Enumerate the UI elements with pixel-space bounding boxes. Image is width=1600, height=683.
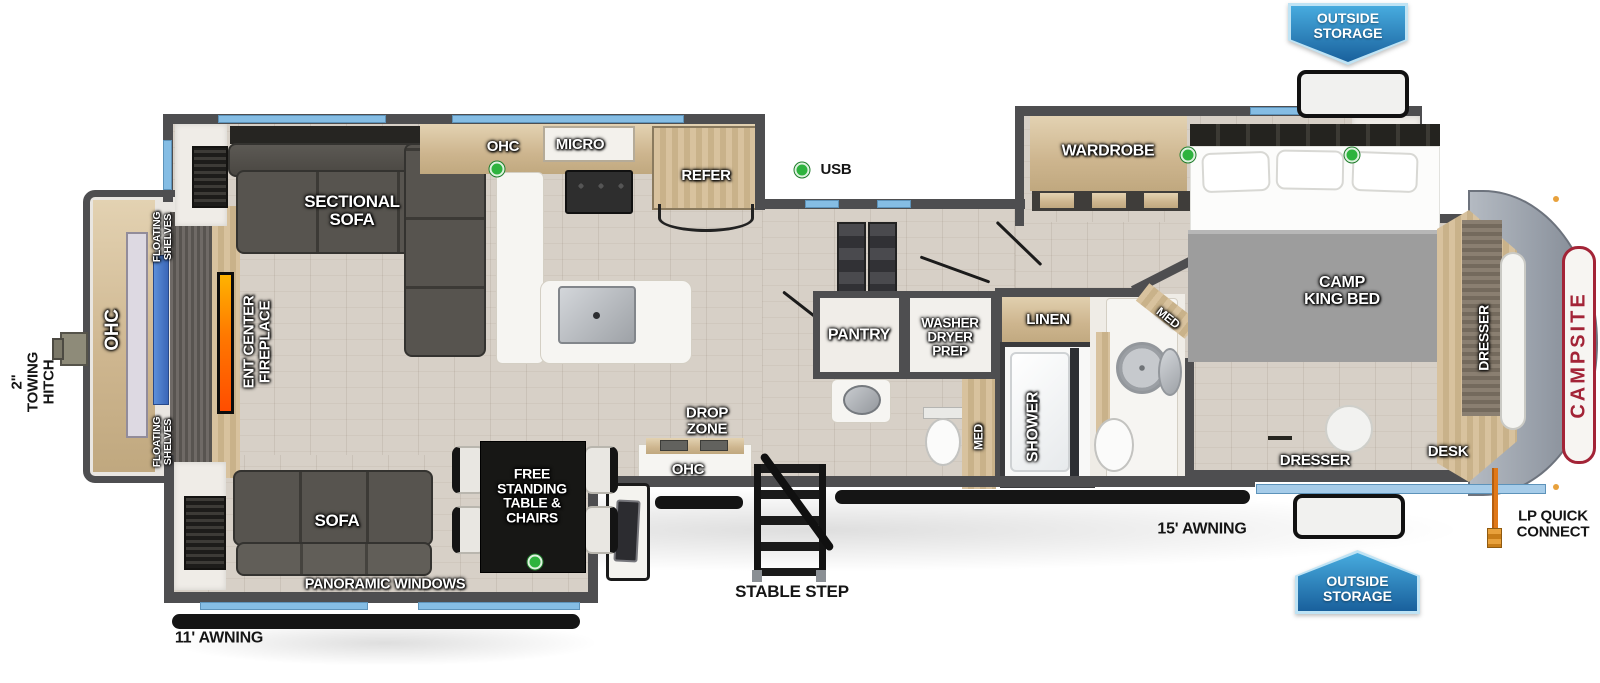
outside-storage-badge-top: OUTSIDE STORAGE bbox=[1288, 3, 1408, 65]
bath-sink-small bbox=[1158, 348, 1182, 396]
refrigerator-door-arc bbox=[658, 204, 754, 232]
storage-door-bottom bbox=[1293, 494, 1405, 539]
bath-bed-wall bbox=[1185, 358, 1194, 478]
linen-label: LINEN bbox=[1026, 312, 1070, 328]
bedroom-bottom-window bbox=[1256, 484, 1546, 494]
usb-dot-dinette-icon bbox=[528, 555, 543, 570]
floating-shelves-bottom-label: FLOATING SHELVES bbox=[152, 410, 174, 474]
drop-zone-tray-2 bbox=[700, 440, 728, 451]
entry-rail bbox=[655, 496, 743, 509]
awning-11-bar bbox=[172, 614, 580, 629]
sectional-sofa-label: SECTIONAL SOFA bbox=[296, 193, 408, 229]
slide1-window-2 bbox=[452, 115, 684, 123]
shower-label: SHOWER bbox=[1026, 392, 1043, 462]
slide2-left-wall bbox=[1015, 106, 1024, 226]
wardrobe-slat-3 bbox=[1144, 193, 1178, 208]
micro-label: MICRO bbox=[556, 137, 605, 153]
stable-step-foot-2 bbox=[816, 570, 826, 582]
slide1-window-1 bbox=[218, 115, 386, 123]
dinette-chair-3 bbox=[584, 446, 618, 494]
slide3-left-wall bbox=[164, 455, 174, 603]
lp-quick-connect-label: LP QUICK CONNECT bbox=[1497, 508, 1600, 540]
rear-tv-strip bbox=[153, 255, 169, 405]
slide1-end-window bbox=[192, 146, 228, 208]
hall-steps-2 bbox=[868, 222, 897, 298]
sectional-sofa-chaise bbox=[404, 143, 486, 357]
outside-storage-bottom-label: OUTSIDE STORAGE bbox=[1316, 574, 1400, 605]
refer-label: REFER bbox=[681, 168, 730, 184]
awning-11-label: 11' AWNING bbox=[175, 631, 263, 648]
usb-legend-label: USB bbox=[820, 162, 851, 178]
corridor-window-1 bbox=[805, 200, 839, 208]
storage-door-top bbox=[1297, 70, 1409, 118]
cap-marker-light-2 bbox=[1553, 484, 1559, 490]
outside-storage-badge-bottom: OUTSIDE STORAGE bbox=[1295, 550, 1420, 614]
slide1-right-wall bbox=[755, 114, 765, 210]
front-cap-window-band bbox=[1500, 252, 1526, 430]
towing-hitch-label: 2" TOWING HITCH bbox=[9, 344, 56, 420]
usb-dot-wardrobe-icon bbox=[1181, 148, 1196, 163]
panoramic-windows-label: PANORAMIC WINDOWS bbox=[305, 577, 466, 592]
dresser-handle-1 bbox=[1268, 436, 1292, 440]
wardrobe-slat-2 bbox=[1092, 193, 1126, 208]
drop-zone-tray-1 bbox=[660, 440, 688, 451]
usb-dot-bed-icon bbox=[1345, 148, 1360, 163]
cap-marker-light-1 bbox=[1553, 196, 1559, 202]
rear-ohc-label: OHC bbox=[103, 309, 123, 350]
pantry-label: PANTRY bbox=[828, 328, 890, 345]
med-mid-label: MED bbox=[973, 424, 986, 450]
sofa-seats bbox=[236, 542, 432, 576]
sectional-console bbox=[230, 126, 426, 144]
usb-dot-kitchen-icon bbox=[490, 162, 505, 177]
mid-toilet-bowl bbox=[925, 418, 961, 466]
ent-center-fireplace-label: ENT CENTER FIREPLACE bbox=[241, 289, 273, 395]
shower-glass bbox=[1070, 348, 1079, 482]
wardrobe-slat-1 bbox=[1040, 193, 1074, 208]
sofa-back bbox=[233, 470, 433, 546]
bed-pillow-1 bbox=[1201, 151, 1270, 193]
hall-steps-1 bbox=[837, 222, 866, 298]
stable-step-foot-1 bbox=[752, 570, 762, 582]
awning-15-bar bbox=[835, 490, 1250, 504]
main-bath-top-wall bbox=[995, 288, 1147, 297]
awning-15-label: 15' AWNING bbox=[1157, 522, 1246, 539]
kitchen-sink-drain bbox=[593, 312, 600, 319]
corridor-window-2 bbox=[877, 200, 911, 208]
kitchen-ohc-label: OHC bbox=[487, 139, 519, 155]
dresser-front-label: DRESSER bbox=[1477, 305, 1492, 371]
slide1-left-window bbox=[163, 140, 172, 190]
stable-step-label: STABLE STEP bbox=[735, 583, 849, 601]
outside-storage-top-label: OUTSIDE STORAGE bbox=[1306, 11, 1390, 42]
bed-pillow-2 bbox=[1276, 149, 1345, 190]
slide3-end-window bbox=[184, 496, 226, 570]
usb-dot-legend-icon bbox=[795, 163, 810, 178]
desk-label: DESK bbox=[1428, 444, 1468, 460]
free-standing-table-label: FREE STANDING TABLE & CHAIRS bbox=[485, 467, 579, 526]
fireplace bbox=[217, 272, 234, 414]
dresser-bottom-label: DRESSER bbox=[1280, 453, 1350, 469]
kitchen-counter bbox=[496, 172, 544, 364]
drop-zone-label: DROP ZONE bbox=[676, 405, 738, 437]
entertainment-wall bbox=[170, 212, 212, 474]
brand-label: CAMPSITE bbox=[1569, 291, 1590, 418]
floating-shelves-top-label: FLOATING SHELVES bbox=[152, 205, 174, 269]
towing-hitch bbox=[60, 332, 88, 366]
floorplan-canvas: CAMPSITE OUTSIDE STORAGE OUTSIDE STORAGE bbox=[0, 0, 1600, 683]
stove bbox=[565, 170, 633, 214]
wardrobe-label: WARDROBE bbox=[1062, 144, 1155, 161]
bed-pillow-3 bbox=[1351, 151, 1418, 193]
bed-headboard bbox=[1190, 124, 1440, 148]
mid-bath-sink bbox=[843, 385, 881, 415]
desk-chair bbox=[1325, 405, 1373, 453]
slide3-window-2 bbox=[418, 602, 580, 610]
sofa-label: SOFA bbox=[314, 512, 359, 530]
slide3-window-1 bbox=[200, 602, 368, 610]
bath-toilet-bowl bbox=[1094, 418, 1134, 472]
dinette-chair-4 bbox=[584, 506, 618, 554]
rear-tv-panel bbox=[126, 232, 148, 438]
washer-dryer-prep-label: WASHER DRYER PREP bbox=[912, 317, 988, 360]
drop-zone-ohc-label: OHC bbox=[672, 462, 704, 478]
camp-king-bed-label: CAMP KING BED bbox=[1302, 275, 1382, 309]
